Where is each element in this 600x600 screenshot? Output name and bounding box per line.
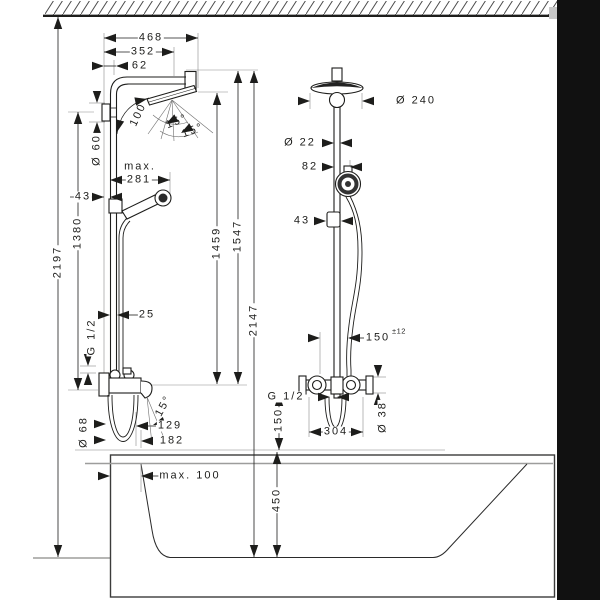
dim-bracket-height: 1380 (73, 216, 84, 250)
dim-max-label: max. (123, 162, 157, 173)
dim-total-height: 2197 (53, 245, 64, 279)
dim-wall-to-pipe: 43 (74, 192, 92, 203)
dim-valve-dia: Ø 38 (378, 400, 389, 434)
dim-valve-width: 304 (323, 427, 349, 438)
dim-tub-overhang: max. 100 (158, 471, 221, 482)
dim-handshower-height: 1459 (212, 226, 223, 260)
dim-head-dia: Ø 240 (395, 96, 437, 107)
shower-system-diagram (0, 0, 600, 600)
dim-overall-height: 2147 (249, 303, 260, 337)
dim-width-full: 468 (138, 33, 164, 44)
dim-reach-max: 281 (126, 175, 152, 186)
dim-hose-clearance-tol: ±12 (391, 327, 407, 335)
dim-slider-offset: 43 (293, 216, 311, 227)
dim-handshower-offset: 82 (301, 162, 319, 173)
bathtub (33, 450, 555, 597)
dim-thread-left: G 1/2 (87, 318, 98, 357)
dim-valve-above-rim: 150 (274, 407, 285, 433)
right-wall (549, 0, 600, 600)
dim-spout-reach: 129 (157, 421, 183, 432)
right-view-shower (299, 68, 373, 432)
ceiling-hatch (43, 1, 557, 16)
dim-spout-reach-outer: 182 (159, 436, 185, 447)
dim-hose-clearance: 150 (365, 333, 391, 344)
dim-width-pipe-offset: 62 (131, 61, 149, 72)
dim-pipe-dia: 25 (138, 310, 156, 321)
dim-pipe-top-height: 1547 (233, 219, 244, 253)
dim-escutcheon-dia: Ø 68 (79, 415, 90, 449)
dim-thread-right: G 1/2 (267, 392, 306, 403)
technical-drawing-page: 468 352 62 100° 15° 15° Ø 60 max. 281 43… (0, 0, 600, 600)
dim-bracket-dia: Ø 60 (92, 133, 103, 167)
dim-riser-dia: Ø 22 (283, 138, 317, 149)
dim-rim-height: 450 (272, 487, 283, 513)
dim-width-arm: 352 (130, 47, 156, 58)
